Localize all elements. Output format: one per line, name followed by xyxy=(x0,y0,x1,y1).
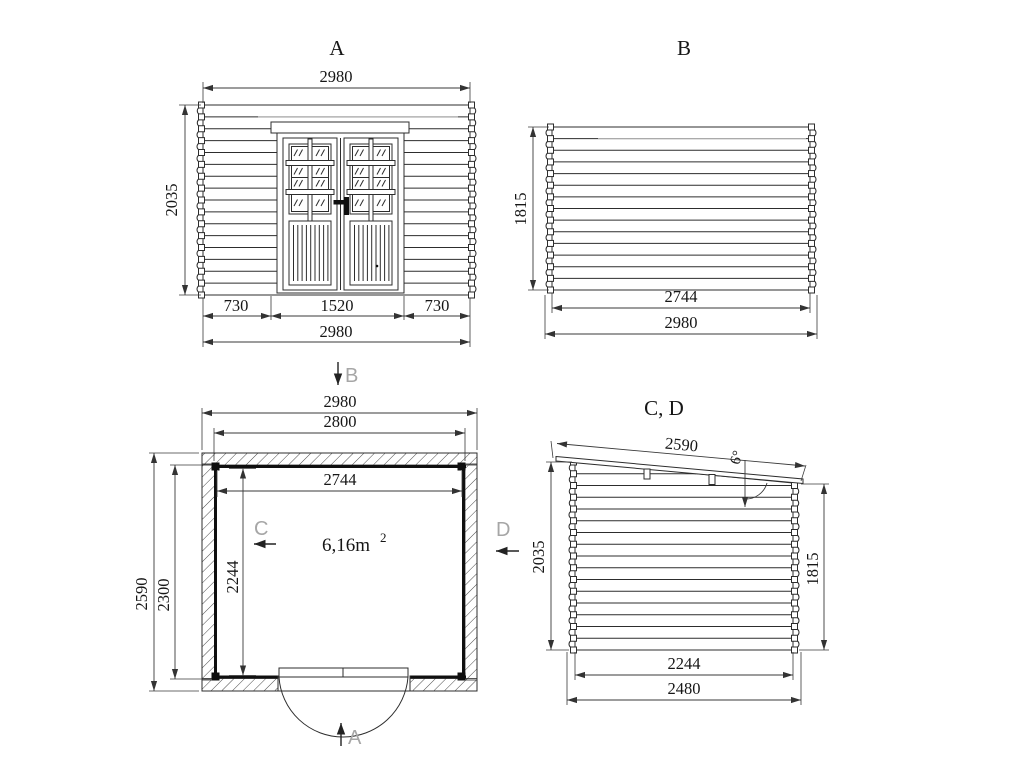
dim-plan-inner-depth: 2244 xyxy=(223,561,242,594)
plan-floor-area: 6,16m xyxy=(322,535,370,556)
front-right-log-ends xyxy=(469,102,477,298)
door-header-board xyxy=(271,122,409,133)
view-front-elevation: A xyxy=(162,36,476,347)
front-left-log-ends xyxy=(197,102,204,298)
dim-front-right-segment: 730 xyxy=(425,296,450,315)
dim-front-width-bottom: 2980 xyxy=(320,322,353,341)
door-left-upper-bar xyxy=(286,161,334,166)
dim-plan-outer-width: 2980 xyxy=(324,392,357,411)
dim-plan-roof-depth: 2590 xyxy=(132,578,151,611)
dim-side-roof-length: 2590 xyxy=(664,434,699,456)
cabin-technical-drawing: A xyxy=(0,0,1024,768)
door-left-lower-bar xyxy=(286,190,334,195)
plan-corner-post-bottom-right xyxy=(458,673,466,681)
plan-corner-post-top-right xyxy=(458,463,466,471)
back-right-log-ends xyxy=(809,124,817,293)
dim-back-height: 1815 xyxy=(511,193,530,226)
dim-side-outer-width: 2480 xyxy=(668,679,701,698)
plan-door-leaf-left xyxy=(279,668,343,677)
front-double-door xyxy=(271,122,409,293)
section-letter-c: C xyxy=(254,518,268,540)
back-left-log-ends xyxy=(546,124,554,293)
door-left-lower-panel xyxy=(289,221,331,285)
door-right-lower-panel xyxy=(350,221,392,285)
door-handle-plate xyxy=(344,197,349,215)
side-right-log-ends xyxy=(792,483,800,654)
side-view-label: C, D xyxy=(644,396,684,420)
side-roof-support-2 xyxy=(709,475,715,485)
plan-corner-post-bottom-left xyxy=(212,673,220,681)
dim-plan-wall-depth: 2300 xyxy=(154,579,173,612)
side-roof-support-1 xyxy=(644,469,650,479)
technical-drawing-page: A xyxy=(0,0,1024,768)
dim-plan-inner-width: 2744 xyxy=(324,470,357,489)
door-stop-dot xyxy=(376,265,379,268)
view-back-elevation: B 1815 2744 2980 xyxy=(511,36,817,339)
door-right-vertical-bar xyxy=(369,139,373,223)
door-handle-lever xyxy=(334,200,350,205)
plan-floor-area-superscript: 2 xyxy=(380,530,387,545)
plan-corner-post-top-left xyxy=(212,463,220,471)
view-floor-plan: B xyxy=(132,362,519,749)
dim-front-left-segment: 730 xyxy=(224,296,249,315)
section-letter-a: A xyxy=(348,727,362,749)
door-left-vertical-bar xyxy=(308,139,312,223)
view-side-elevation: C, D 2590 6° 2035 1815 2244 xyxy=(529,396,829,705)
side-left-log-ends xyxy=(569,459,577,653)
dim-front-height: 2035 xyxy=(162,184,181,217)
back-view-label: B xyxy=(677,36,691,60)
door-right-lower-bar xyxy=(347,190,395,195)
dim-plan-wall-width: 2800 xyxy=(324,412,357,431)
front-view-label: A xyxy=(329,36,345,60)
door-right-upper-bar xyxy=(347,161,395,166)
dim-side-height-left: 2035 xyxy=(529,541,548,574)
plan-door-leaf-right xyxy=(343,668,408,677)
section-letter-b: B xyxy=(345,365,358,387)
dim-back-outer-width: 2980 xyxy=(665,313,698,332)
dim-front-door-width: 1520 xyxy=(321,296,354,315)
dim-front-width-top: 2980 xyxy=(320,67,353,86)
dim-side-height-right: 1815 xyxy=(803,553,822,586)
dim-back-inner-width: 2744 xyxy=(665,287,698,306)
section-letter-d: D xyxy=(496,519,510,541)
dim-side-inner-width: 2244 xyxy=(668,654,701,673)
dim-side-roof-angle: 6° xyxy=(728,449,747,467)
